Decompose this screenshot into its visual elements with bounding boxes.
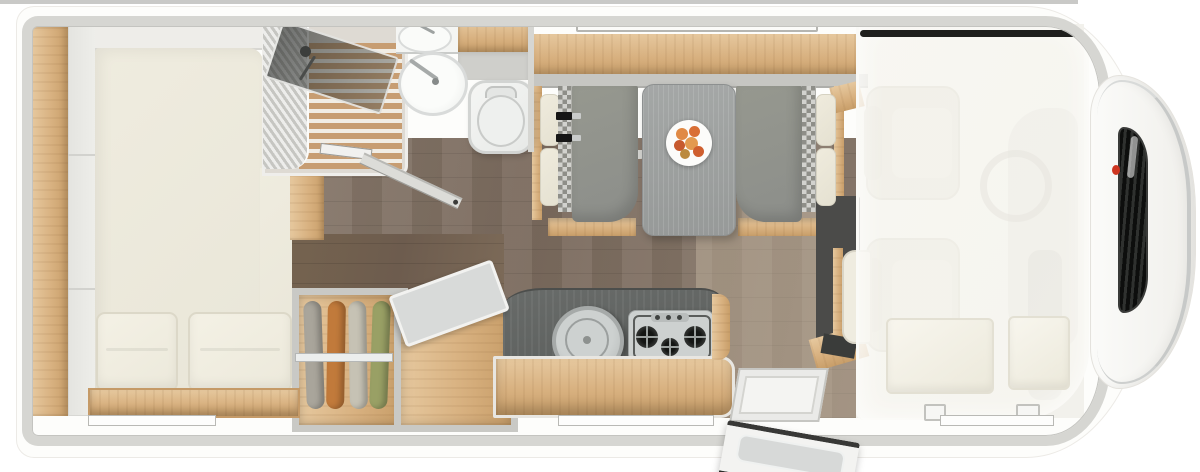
page-top-strip [0,0,1078,4]
entry-door-window [735,433,846,472]
side-marker-light [1112,165,1120,175]
outer-wall [22,16,1110,446]
front-nose [1090,75,1196,389]
cab-side-window [940,415,1054,426]
floorplan-stage [0,0,1200,472]
kitchen-window [558,415,714,426]
rear-window [88,415,216,426]
